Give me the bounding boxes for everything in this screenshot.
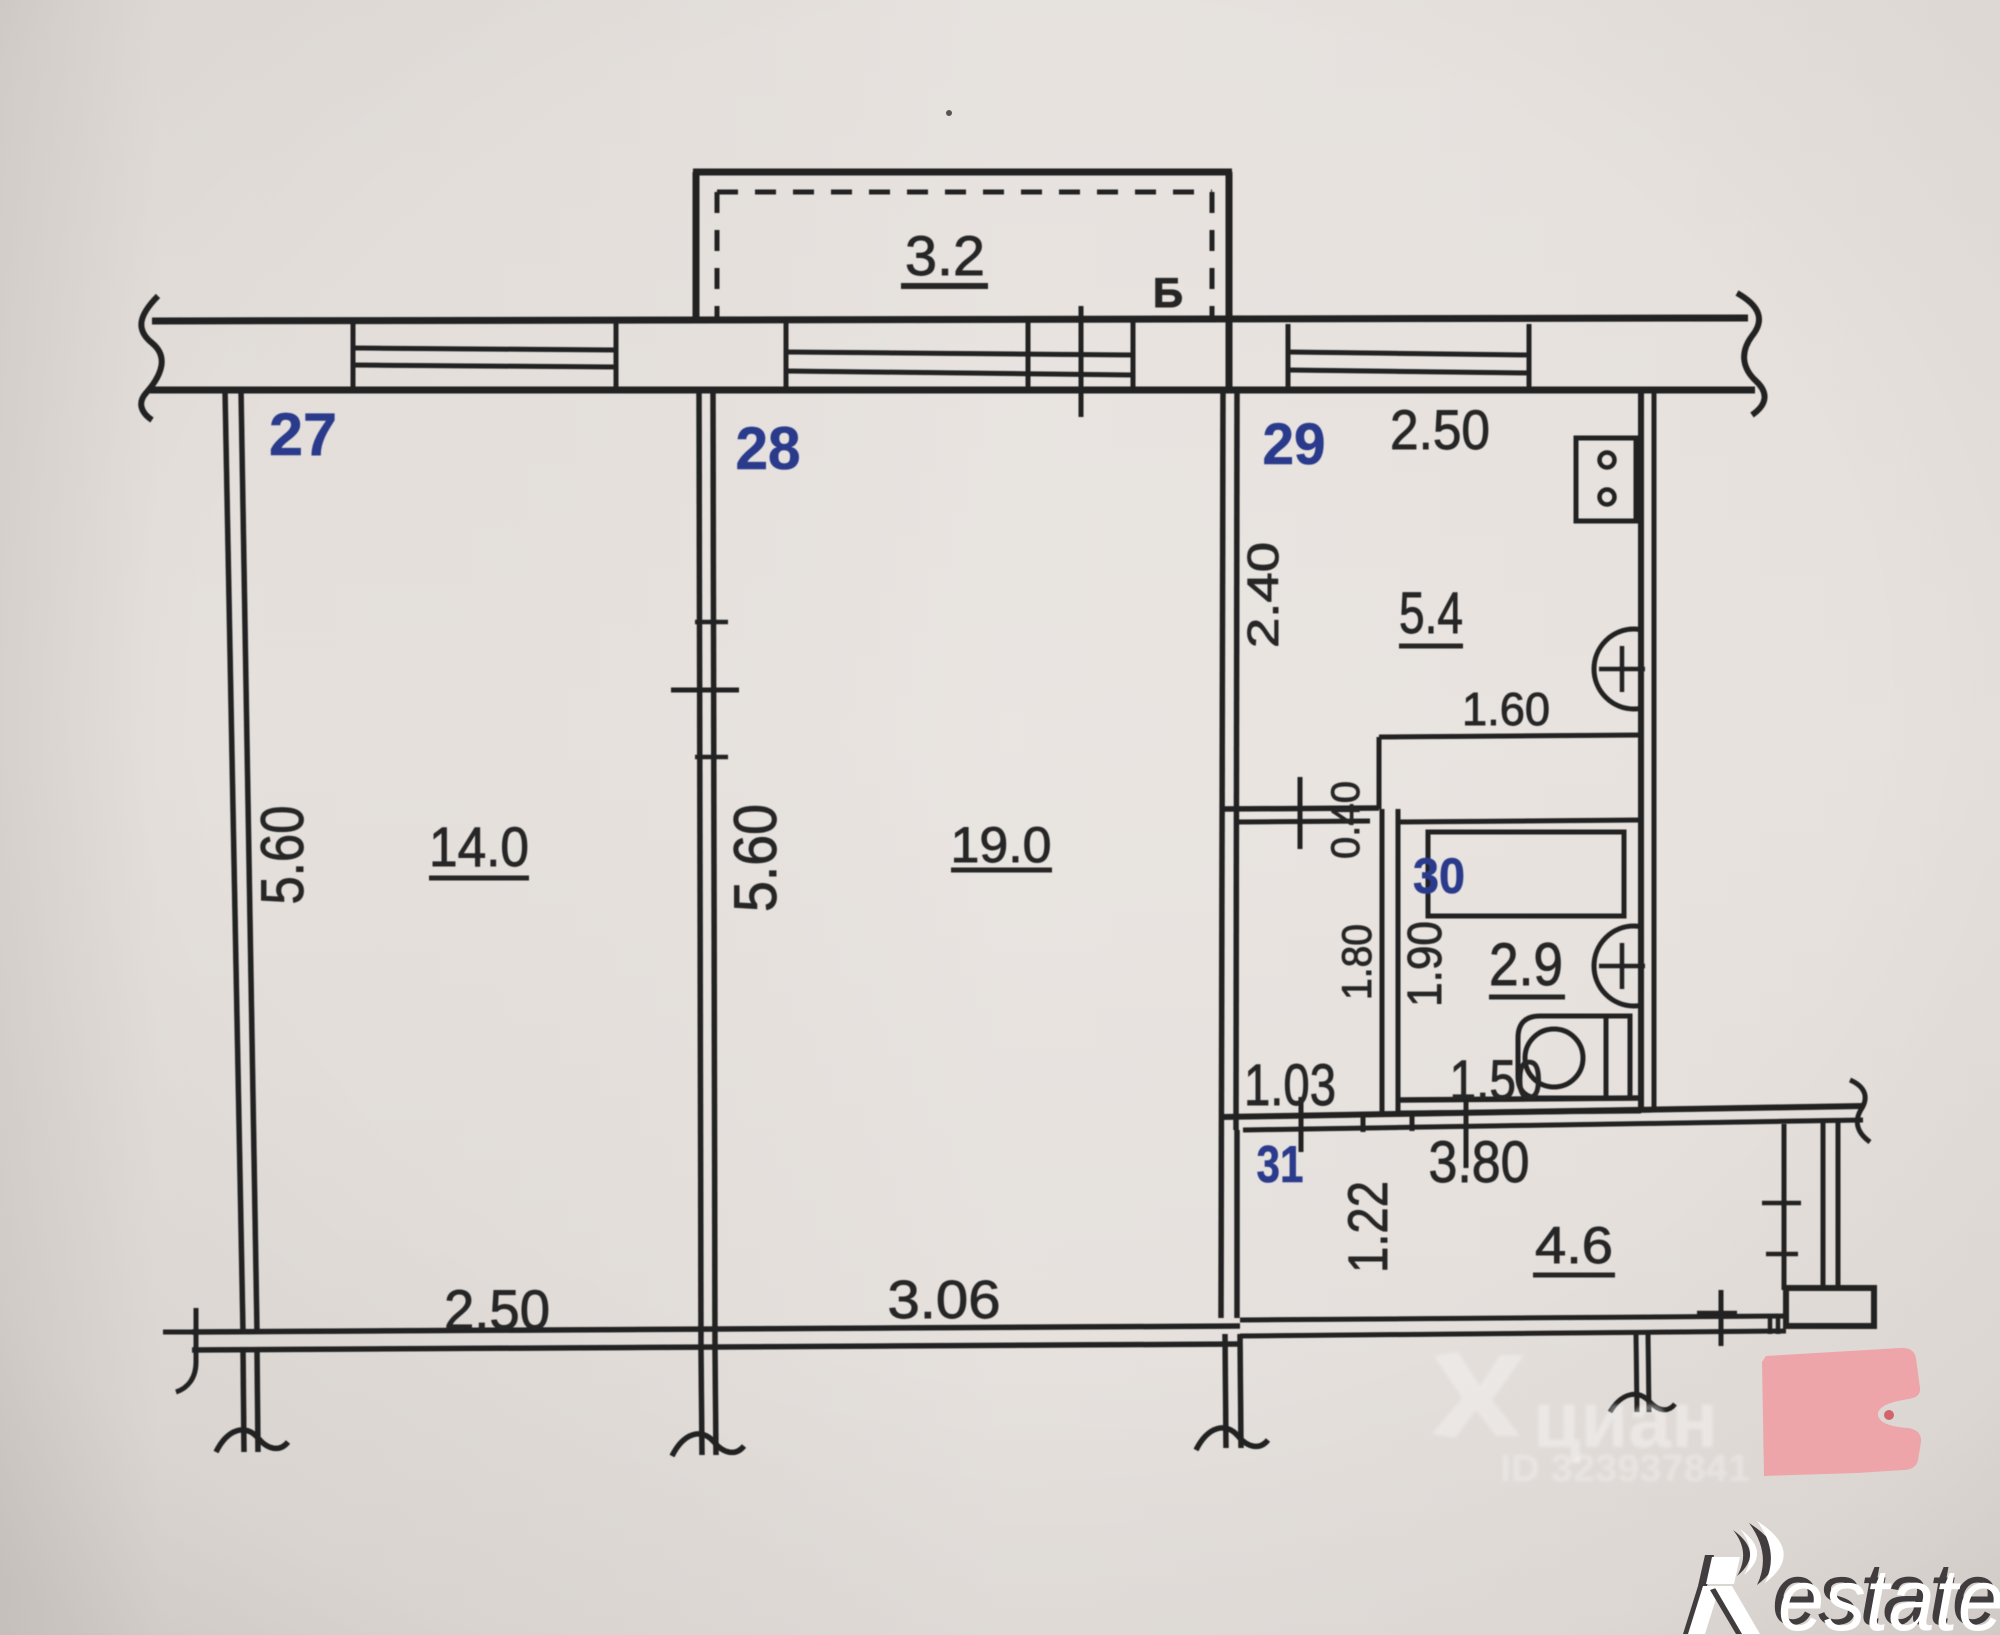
svg-text:1.60: 1.60 (1462, 683, 1550, 735)
svg-text:1.80: 1.80 (1333, 924, 1380, 1000)
svg-text:1.90: 1.90 (1399, 921, 1452, 1007)
svg-text:0.40: 0.40 (1324, 781, 1368, 859)
svg-text:27: 27 (269, 401, 337, 468)
svg-text:3.06: 3.06 (888, 1270, 1001, 1330)
svg-text:19.0: 19.0 (951, 817, 1052, 873)
svg-text:estate: estate (1778, 1550, 2000, 1635)
svg-text:2.50: 2.50 (444, 1278, 550, 1341)
svg-text:2.9: 2.9 (1489, 931, 1563, 998)
svg-text:ID 323937841: ID 323937841 (1500, 1448, 1750, 1490)
svg-text:4.6: 4.6 (1535, 1217, 1613, 1275)
svg-text:Б: Б (1153, 269, 1183, 316)
svg-text:5.4: 5.4 (1399, 581, 1463, 646)
svg-text:29: 29 (1263, 412, 1326, 477)
svg-text:31: 31 (1257, 1136, 1304, 1194)
svg-text:3.2: 3.2 (905, 224, 985, 287)
svg-text:3.80: 3.80 (1429, 1130, 1530, 1195)
svg-text:2.40: 2.40 (1239, 542, 1288, 648)
svg-text:1.50: 1.50 (1450, 1048, 1543, 1111)
svg-text:14.0: 14.0 (429, 815, 529, 878)
svg-text:1.22: 1.22 (1336, 1181, 1399, 1273)
svg-text:1.03: 1.03 (1244, 1053, 1336, 1118)
svg-text:30: 30 (1413, 848, 1465, 904)
svg-text:2.50: 2.50 (1390, 398, 1490, 461)
svg-text:5.60: 5.60 (722, 804, 789, 912)
svg-text:5.60: 5.60 (249, 806, 316, 905)
svg-text:28: 28 (736, 415, 801, 482)
